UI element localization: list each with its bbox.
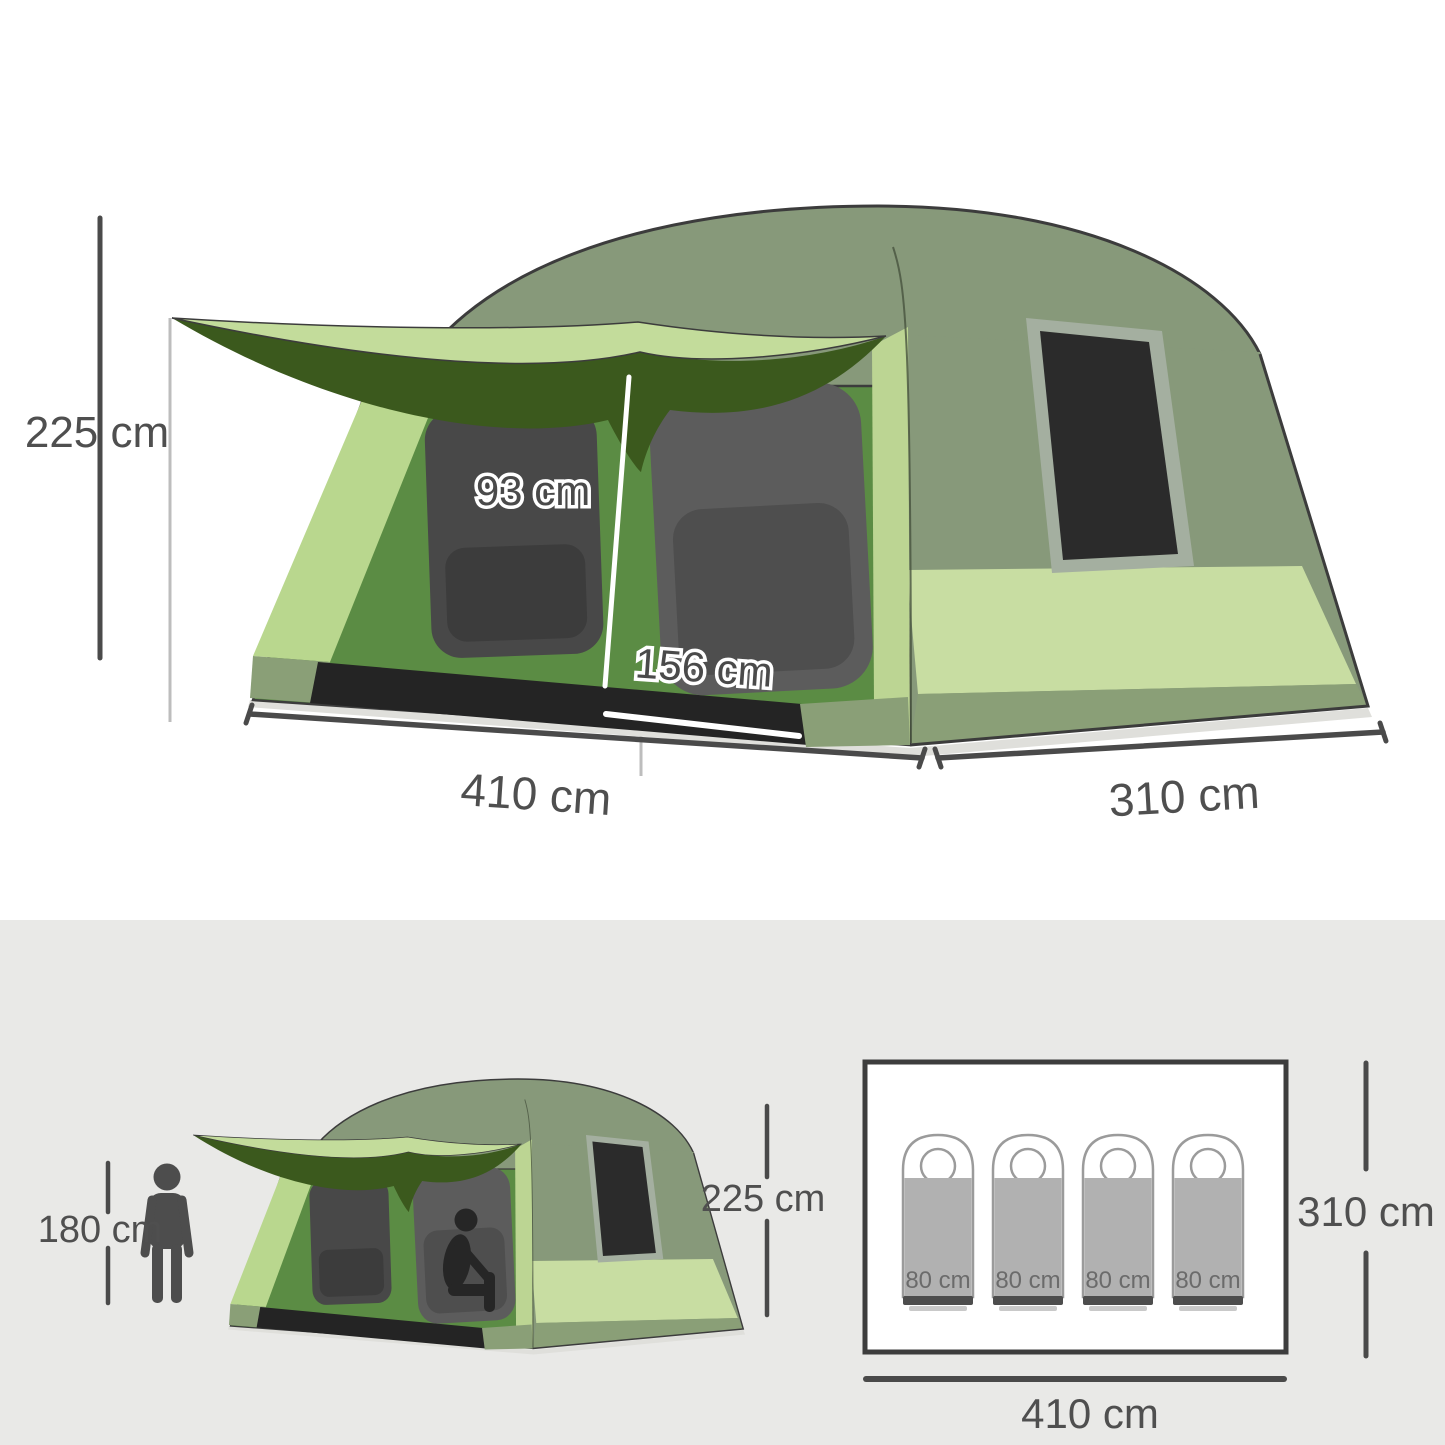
- bag-foot-shadow: [999, 1306, 1057, 1311]
- floorplan-width-label: 410 cm: [1021, 1390, 1159, 1437]
- width-dimension-label: 410 cm: [459, 763, 613, 825]
- bag-foot-shadow: [1179, 1306, 1237, 1311]
- door-width-label: 156 cm: [634, 639, 775, 695]
- bag-width-label: 80 cm: [995, 1267, 1060, 1294]
- diagram-canvas: 225 cm 410 cm 310 cm 93 cm 156 cm: [0, 0, 1445, 1445]
- sleeping-bag: 80 cm: [1173, 1135, 1243, 1311]
- bag-foot-bar: [1173, 1296, 1243, 1305]
- bag-pillow: [921, 1149, 955, 1183]
- height-dimension-label: 225 cm: [25, 408, 169, 457]
- sitting-person-head: [455, 1209, 478, 1232]
- bag-foot-bar: [903, 1296, 973, 1305]
- sleeping-bag: 80 cm: [903, 1135, 973, 1311]
- sleeping-bag: 80 cm: [993, 1135, 1063, 1311]
- tent-dimension-diagram: 225 cm 410 cm 310 cm 93 cm 156 cm: [0, 0, 1445, 1445]
- bag-foot-bar: [993, 1296, 1063, 1305]
- bag-foot-shadow: [1089, 1306, 1147, 1311]
- person-height-label: 180 cm: [38, 1209, 163, 1251]
- person-leg-right: [171, 1244, 182, 1303]
- depth-dimension-label: 310 cm: [1107, 766, 1261, 827]
- floorplan-depth-label: 310 cm: [1297, 1188, 1435, 1235]
- sleeping-bag: 80 cm: [1083, 1135, 1153, 1311]
- door-height-label: 93 cm: [476, 467, 590, 514]
- bag-pillow: [1101, 1149, 1135, 1183]
- bag-pillow: [1191, 1149, 1225, 1183]
- person-head: [154, 1164, 181, 1191]
- bag-foot-shadow: [909, 1306, 967, 1311]
- bag-width-label: 80 cm: [1175, 1267, 1240, 1294]
- bag-foot-bar: [1083, 1296, 1153, 1305]
- bag-width-label: 80 cm: [905, 1267, 970, 1294]
- person-leg-left: [152, 1244, 163, 1303]
- small-tent-height-label: 225 cm: [701, 1178, 826, 1220]
- bag-width-label: 80 cm: [1085, 1267, 1150, 1294]
- bag-pillow: [1011, 1149, 1045, 1183]
